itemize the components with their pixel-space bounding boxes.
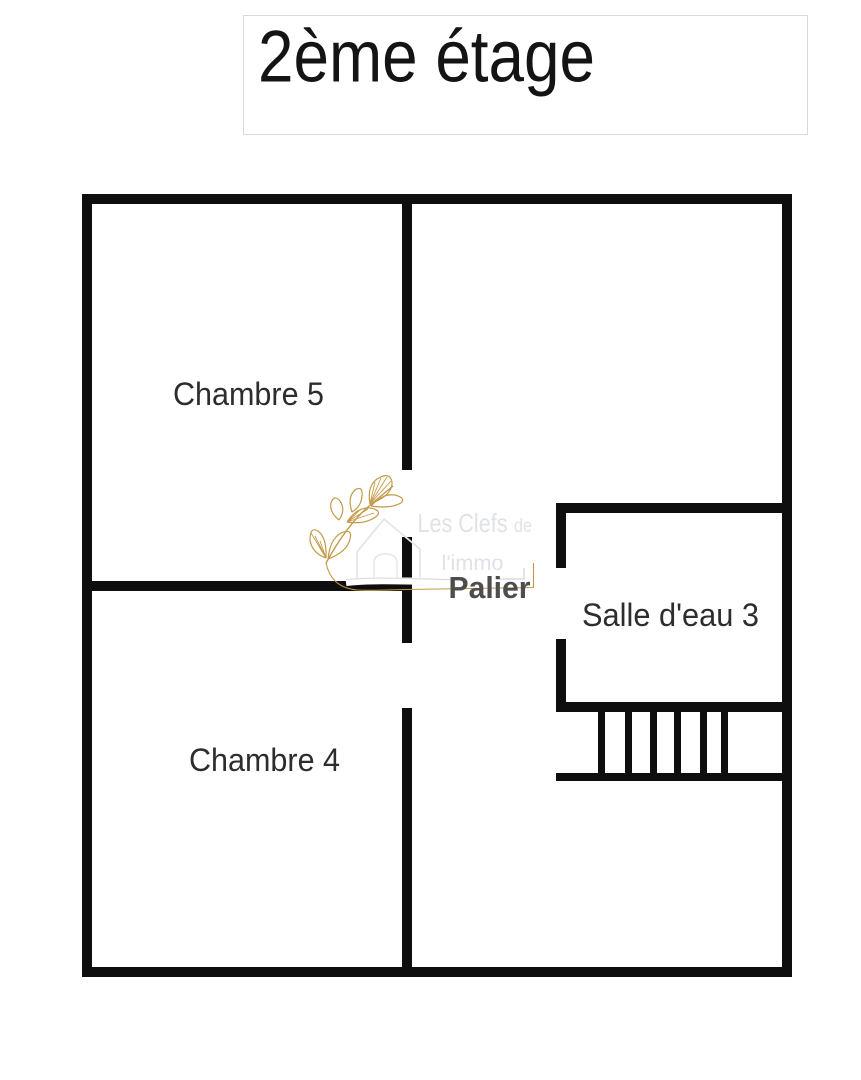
svg-text:Chambre 5: Chambre 5 — [173, 376, 324, 412]
svg-text:Chambre 4: Chambre 4 — [189, 742, 340, 778]
svg-text:de: de — [514, 516, 532, 537]
svg-text:Salle d'eau 3: Salle d'eau 3 — [582, 597, 759, 633]
svg-text:Les Clefs: Les Clefs — [418, 508, 508, 538]
svg-text:Palier: Palier — [449, 570, 531, 605]
svg-text:2ème étage: 2ème étage — [258, 17, 595, 98]
